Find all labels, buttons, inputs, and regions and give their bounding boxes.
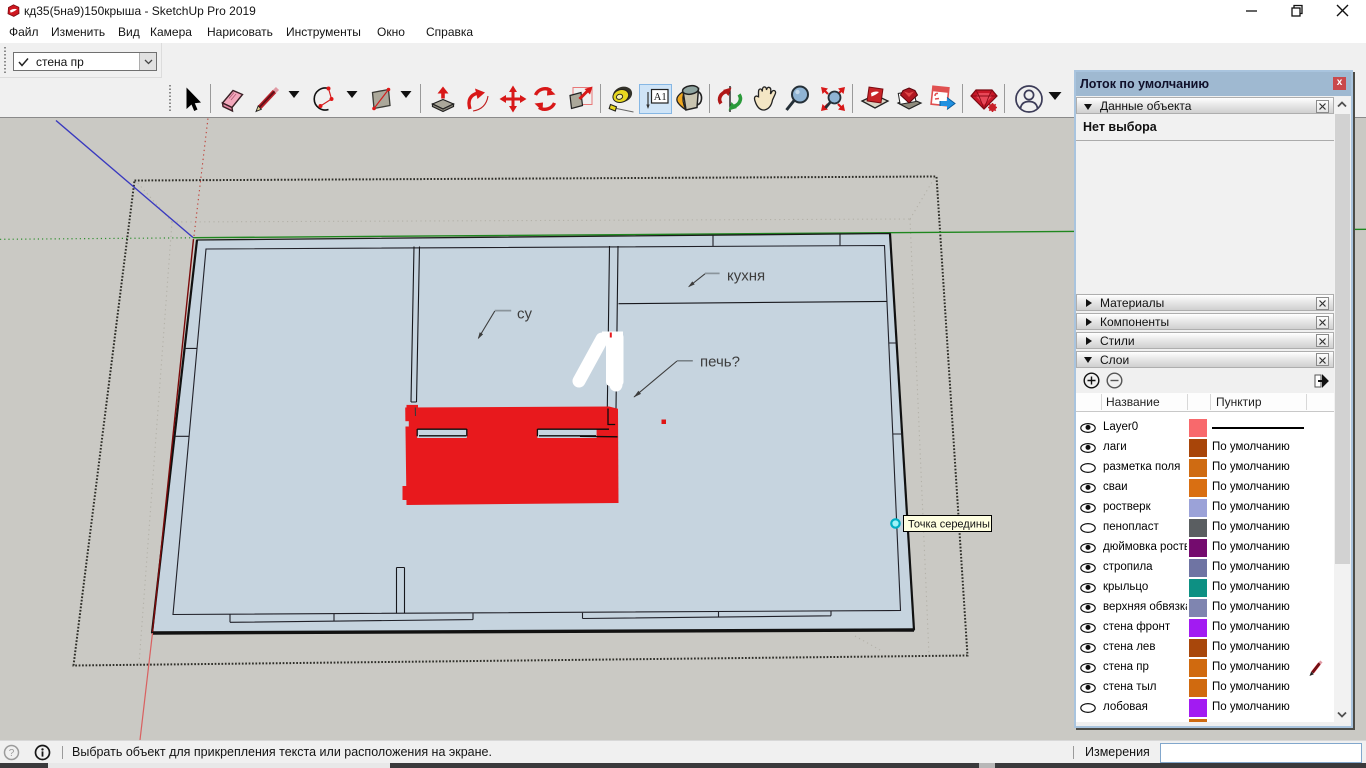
svg-text:A1: A1 (654, 92, 667, 103)
svg-text:кухня: кухня (727, 268, 765, 285)
svg-text:?: ? (9, 748, 15, 759)
svg-text:су: су (517, 306, 533, 323)
svg-text:печь?: печь? (700, 354, 740, 371)
svg-text:Точка середины: Точка середины (908, 519, 990, 531)
